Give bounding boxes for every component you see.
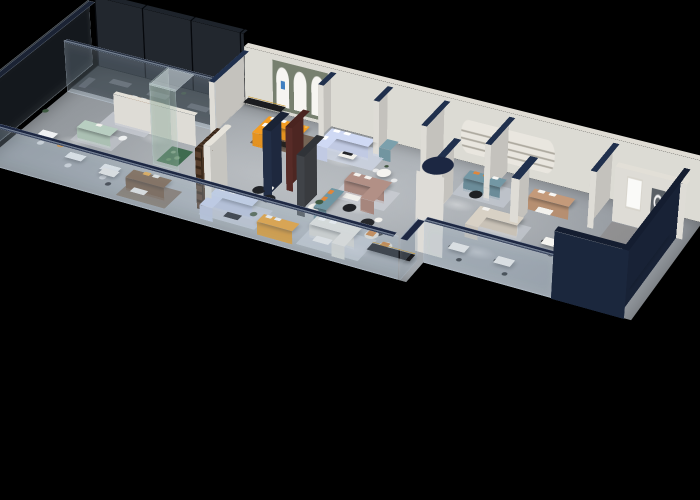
bay-art-white	[625, 176, 643, 212]
showroom-render	[0, 0, 700, 500]
isometric-scene	[0, 66, 700, 341]
partition-face	[318, 84, 324, 140]
terrarium-glass-box-face	[149, 83, 179, 172]
burgundy-panel-face	[286, 127, 294, 192]
arch-logo-blue	[281, 81, 285, 90]
arch-panel	[294, 70, 307, 113]
